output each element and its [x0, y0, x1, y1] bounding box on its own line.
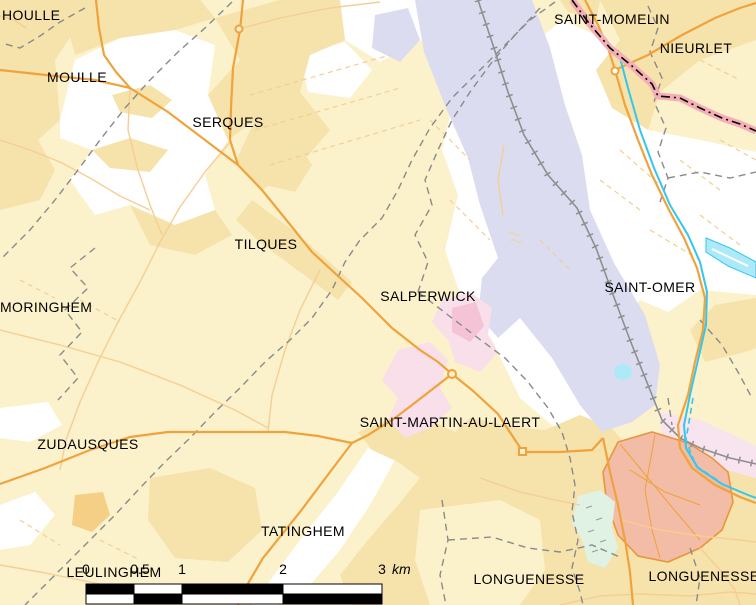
- scale-bar: [86, 584, 382, 604]
- junction-node: [236, 26, 243, 33]
- pond: [614, 364, 632, 380]
- map-graphics: [0, 0, 756, 605]
- commune-label-houlle: HOULLE: [2, 7, 60, 23]
- commune-label-moringhem: MORINGHEM: [0, 299, 92, 315]
- farmland-pocket: [415, 500, 545, 605]
- commune-label-tilques: TILQUES: [235, 236, 298, 252]
- commune-label-nieurlet: NIEURLET: [660, 40, 732, 56]
- roundabout-node: [448, 370, 456, 378]
- junction-node: [612, 68, 619, 75]
- commune-label-moulle: MOULLE: [47, 69, 107, 85]
- commune-label-longuenesse-west: LONGUENESSE: [474, 571, 585, 587]
- scale-tick-1: 1: [178, 561, 186, 577]
- commune-label-salperwick: SALPERWICK: [380, 288, 476, 304]
- junction-square-node: [519, 448, 526, 455]
- scale-tick-0: 0: [82, 561, 90, 577]
- commune-label-tatinghem: TATINGHEM: [261, 523, 345, 539]
- commune-label-serques: SERQUES: [192, 114, 263, 130]
- scale-tick-3: 3: [378, 561, 386, 577]
- commune-label-longuenesse-east: LONGUENESSE: [649, 568, 756, 584]
- commune-label-zudausques: ZUDAUSQUES: [37, 436, 138, 452]
- scale-tick-0-5: 0.5: [130, 561, 149, 577]
- commune-label-saint-momelin: SAINT-MOMELIN: [554, 11, 670, 27]
- commune-label-saint-omer: SAINT-OMER: [604, 279, 695, 295]
- scale-tick-2: 2: [279, 561, 287, 577]
- commune-locator-map: HOULLE MOULLE SERQUES TILQUES SALPERWICK…: [0, 0, 756, 605]
- commune-label-saint-martin-au-laert: SAINT-MARTIN-AU-LAERT: [360, 414, 541, 430]
- scale-unit-km: km: [392, 561, 411, 577]
